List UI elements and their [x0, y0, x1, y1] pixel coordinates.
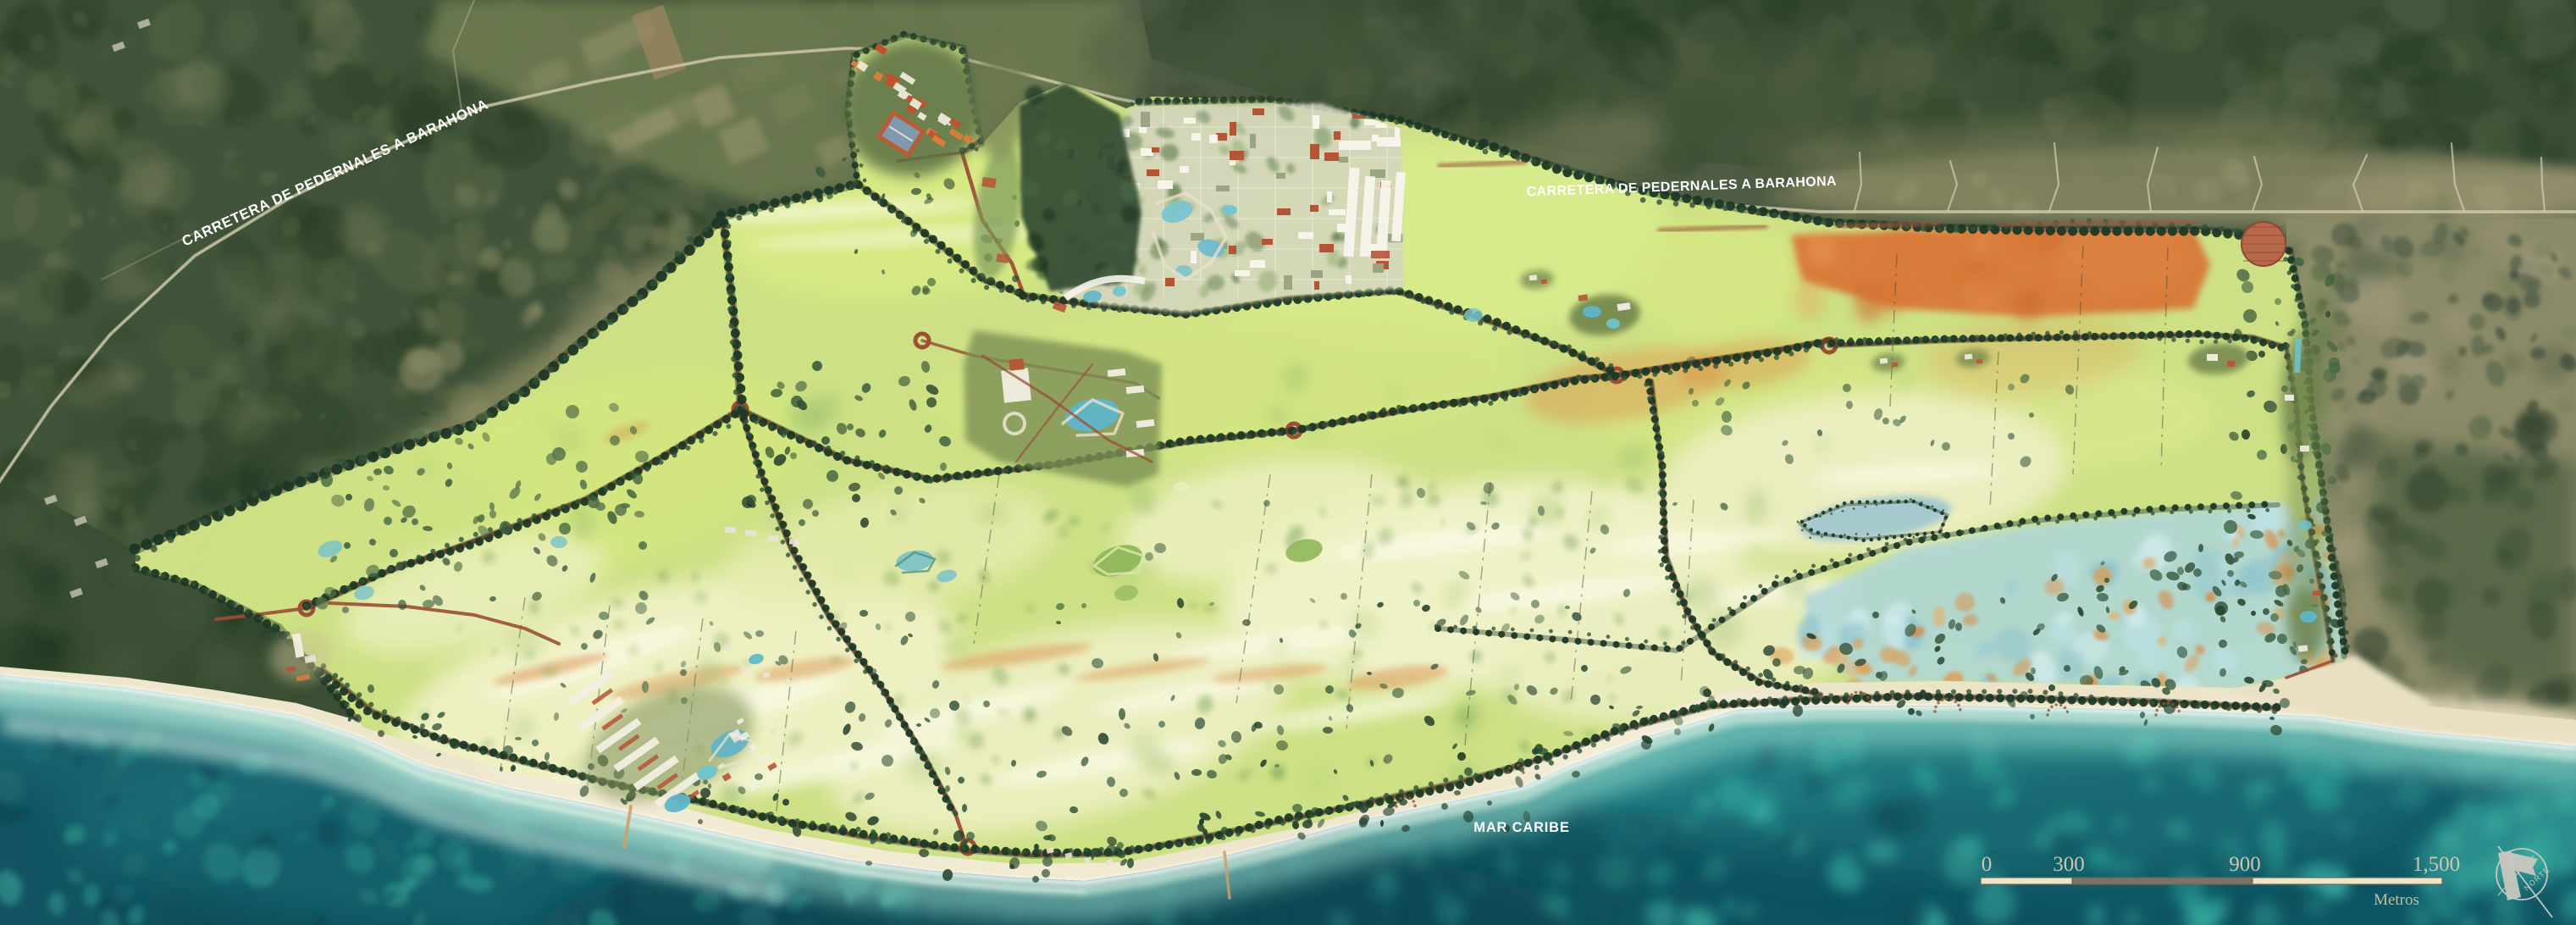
- svg-text:0: 0: [1982, 853, 1993, 876]
- svg-text:MAR CARIBE: MAR CARIBE: [1473, 820, 1569, 835]
- svg-text:300: 300: [2053, 853, 2085, 876]
- svg-text:1,500: 1,500: [2413, 853, 2460, 876]
- svg-text:Metros: Metros: [2374, 891, 2419, 909]
- svg-text:900: 900: [2229, 853, 2261, 876]
